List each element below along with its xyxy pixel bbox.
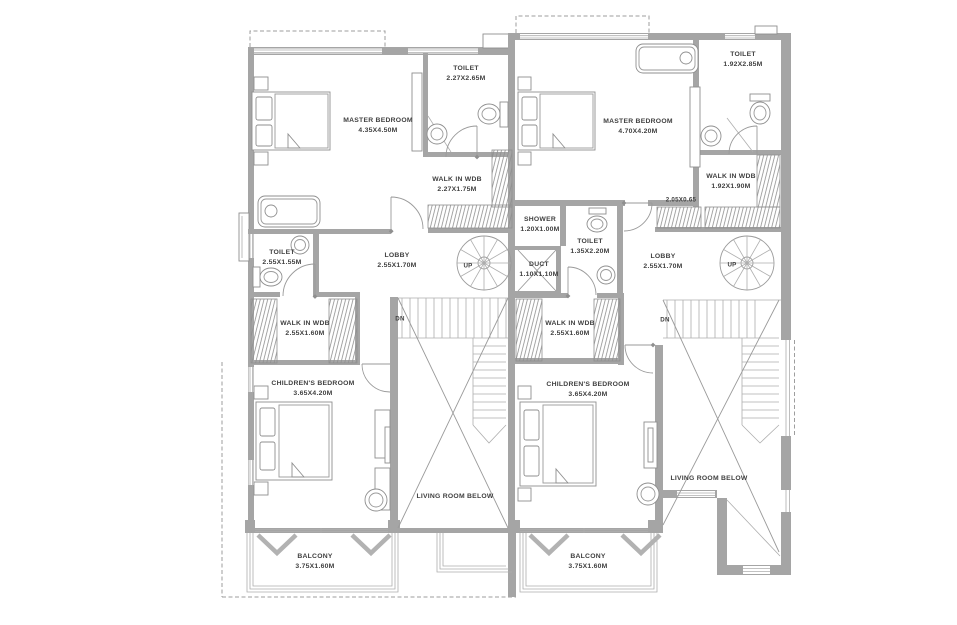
room-name: SHOWER — [520, 215, 559, 225]
label-left-living-room-below: LIVING ROOM BELOW — [416, 492, 493, 502]
room-dims: 3.65X4.20M — [271, 389, 354, 399]
label-left-toilet-top: TOILET 2.27X2.65M — [446, 64, 485, 84]
room-name: LOBBY — [377, 251, 416, 261]
room-dims: 3.65X4.20M — [546, 390, 629, 400]
label-right-up: UP — [727, 262, 736, 271]
floorplan-drawing — [0, 0, 957, 625]
room-dims: 2.55X1.70M — [377, 261, 416, 271]
stair-direction: DN — [395, 316, 404, 325]
stair-direction: DN — [660, 317, 669, 326]
room-dims: 1.92X2.85M — [723, 60, 762, 70]
label-right-walk-in-wdb-top: WALK IN WDB 1.92X1.90M — [706, 172, 756, 192]
room-dims: 2.55X1.55M — [262, 258, 301, 268]
room-name: BALCONY — [568, 552, 607, 562]
label-left-master-bedroom: MASTER BEDROOM 4.35X4.50M — [343, 116, 413, 136]
label-right-balcony: BALCONY 3.75X1.60M — [568, 552, 607, 572]
room-name: WALK IN WDB — [432, 175, 482, 185]
dimension-text: 2.05X0.65 — [666, 197, 696, 206]
label-right-duct: DUCT 1.10X1.10M — [519, 260, 558, 280]
room-dims: 2.55X1.60M — [545, 329, 595, 339]
room-dims: 2.27X2.65M — [446, 74, 485, 84]
room-name: TOILET — [446, 64, 485, 74]
room-name: BALCONY — [295, 552, 334, 562]
wardrobe-hatches — [251, 150, 780, 363]
room-name: WALK IN WDB — [280, 319, 330, 329]
label-left-walk-in-wdb: WALK IN WDB 2.55X1.60M — [280, 319, 330, 339]
room-dims: 1.10X1.10M — [519, 270, 558, 280]
stair-direction: UP — [727, 262, 736, 271]
room-name: MASTER BEDROOM — [343, 116, 413, 126]
room-dims: 2.55X1.70M — [643, 262, 682, 272]
room-name: CHILDREN'S BEDROOM — [546, 380, 629, 390]
label-right-wardrobe-dim: 2.05X0.65 — [666, 197, 696, 206]
room-name: LIVING ROOM BELOW — [416, 492, 493, 502]
label-left-toilet-mid: TOILET 2.55X1.55M — [262, 248, 301, 268]
label-left-up: UP — [463, 263, 472, 272]
label-left-walk-in-wdb-top: WALK IN WDB 2.27X1.75M — [432, 175, 482, 195]
room-name: TOILET — [570, 237, 609, 247]
room-name: DUCT — [519, 260, 558, 270]
room-name: TOILET — [262, 248, 301, 258]
label-left-childrens-bedroom: CHILDREN'S BEDROOM 3.65X4.20M — [271, 379, 354, 399]
label-right-childrens-bedroom: CHILDREN'S BEDROOM 3.65X4.20M — [546, 380, 629, 400]
label-right-toilet-top: TOILET 1.92X2.85M — [723, 50, 762, 70]
room-dims: 2.55X1.60M — [280, 329, 330, 339]
room-name: LOBBY — [643, 252, 682, 262]
label-left-balcony: BALCONY 3.75X1.60M — [295, 552, 334, 572]
stair-direction: UP — [463, 263, 472, 272]
label-right-master-bedroom: MASTER BEDROOM 4.70X4.20M — [603, 117, 673, 137]
room-dims: 3.75X1.60M — [568, 562, 607, 572]
label-left-lobby: LOBBY 2.55X1.70M — [377, 251, 416, 271]
room-dims: 1.35X2.20M — [570, 247, 609, 257]
label-right-living-room-below: LIVING ROOM BELOW — [670, 474, 747, 484]
label-right-lobby: LOBBY 2.55X1.70M — [643, 252, 682, 272]
label-right-shower: SHOWER 1.20X1.00M — [520, 215, 559, 235]
label-right-toilet-mid: TOILET 1.35X2.20M — [570, 237, 609, 257]
room-name: TOILET — [723, 50, 762, 60]
room-name: WALK IN WDB — [706, 172, 756, 182]
room-dims: 3.75X1.60M — [295, 562, 334, 572]
room-name: LIVING ROOM BELOW — [670, 474, 747, 484]
room-dims: 4.35X4.50M — [343, 126, 413, 136]
label-left-dn: DN — [395, 316, 404, 325]
room-dims: 4.70X4.20M — [603, 127, 673, 137]
label-right-walk-in-wdb: WALK IN WDB 2.55X1.60M — [545, 319, 595, 339]
floor-plan: MASTER BEDROOM 4.35X4.50M TOILET 2.27X2.… — [0, 0, 957, 625]
label-right-dn: DN — [660, 317, 669, 326]
room-name: WALK IN WDB — [545, 319, 595, 329]
room-name: MASTER BEDROOM — [603, 117, 673, 127]
room-dims: 1.20X1.00M — [520, 225, 559, 235]
room-dims: 1.92X1.90M — [706, 182, 756, 192]
room-name: CHILDREN'S BEDROOM — [271, 379, 354, 389]
room-dims: 2.27X1.75M — [432, 185, 482, 195]
